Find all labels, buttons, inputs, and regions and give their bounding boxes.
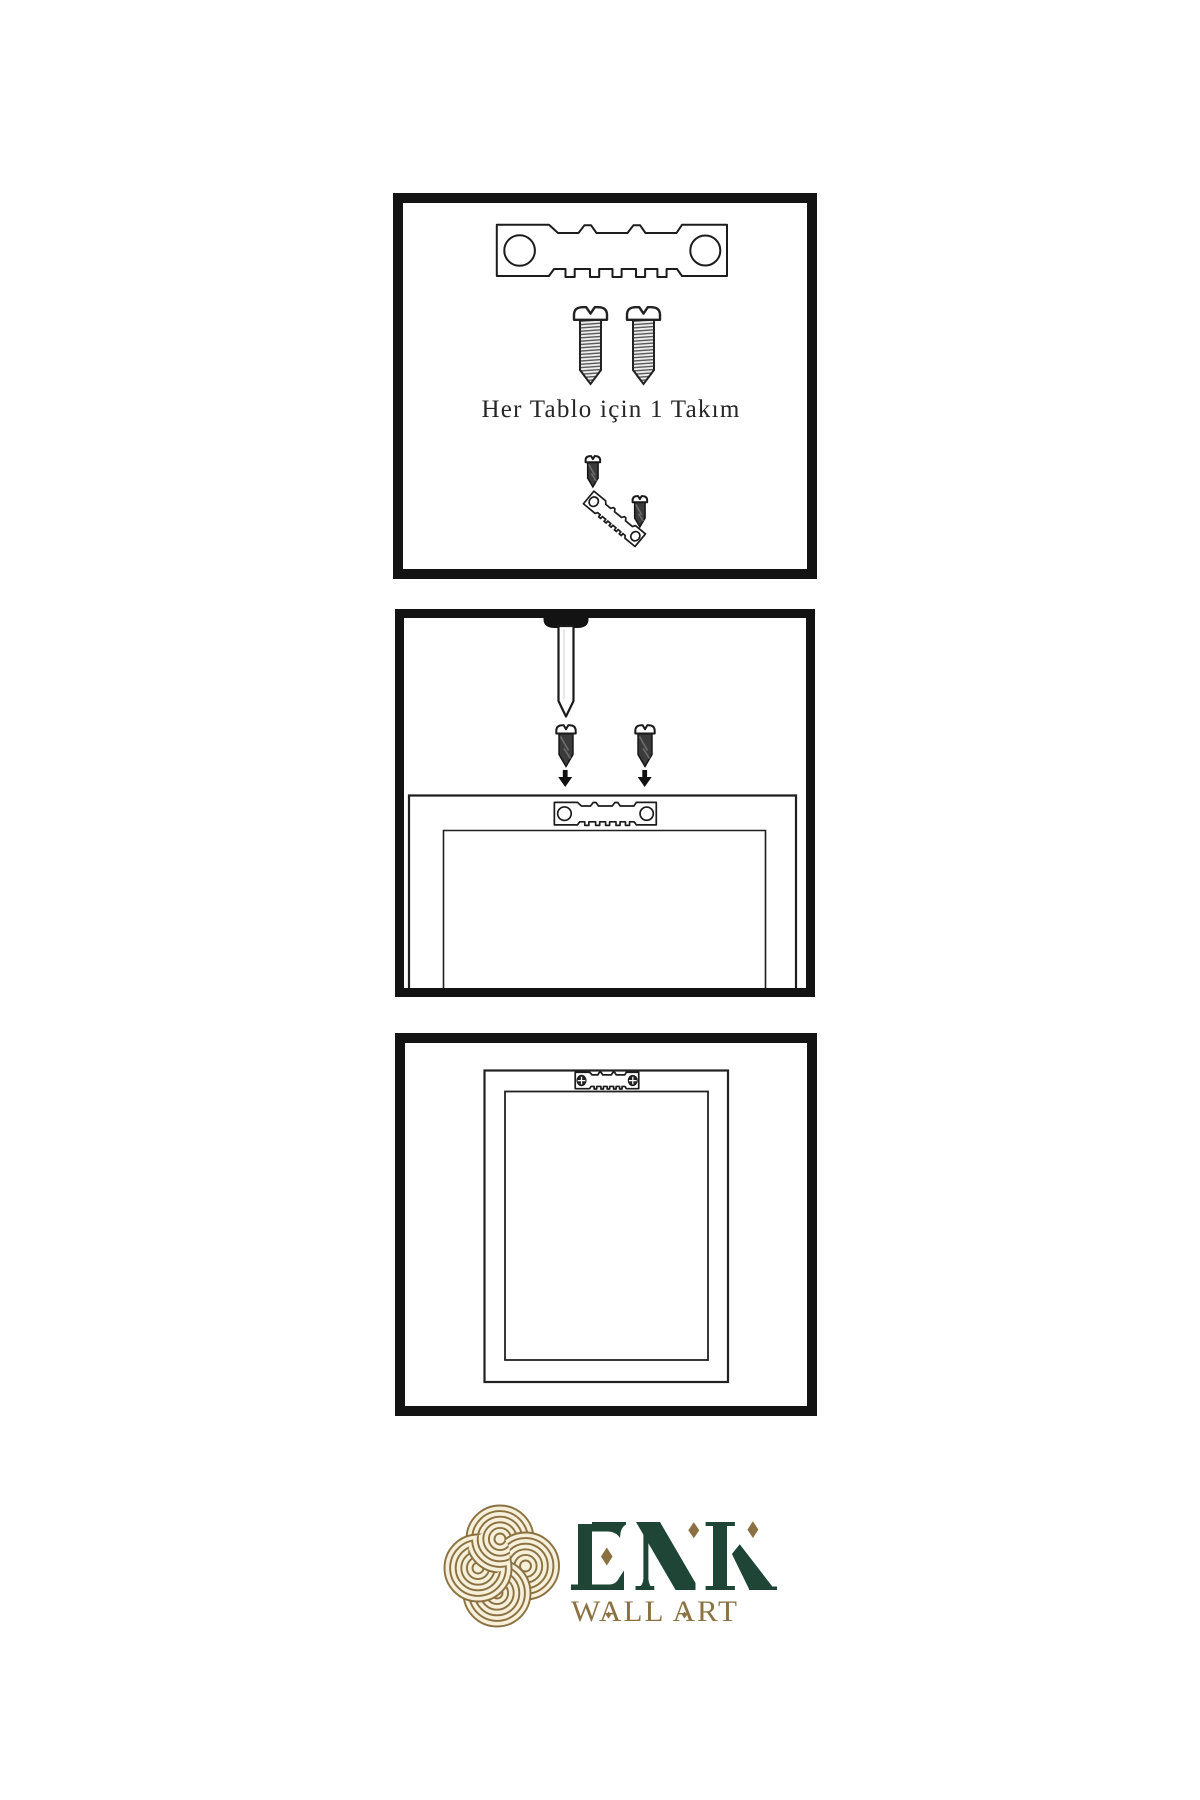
svg-text:Her Tablo için 1 Takım: Her Tablo için 1 Takım <box>482 396 741 423</box>
svg-text:WALL ART: WALL ART <box>571 1595 739 1628</box>
